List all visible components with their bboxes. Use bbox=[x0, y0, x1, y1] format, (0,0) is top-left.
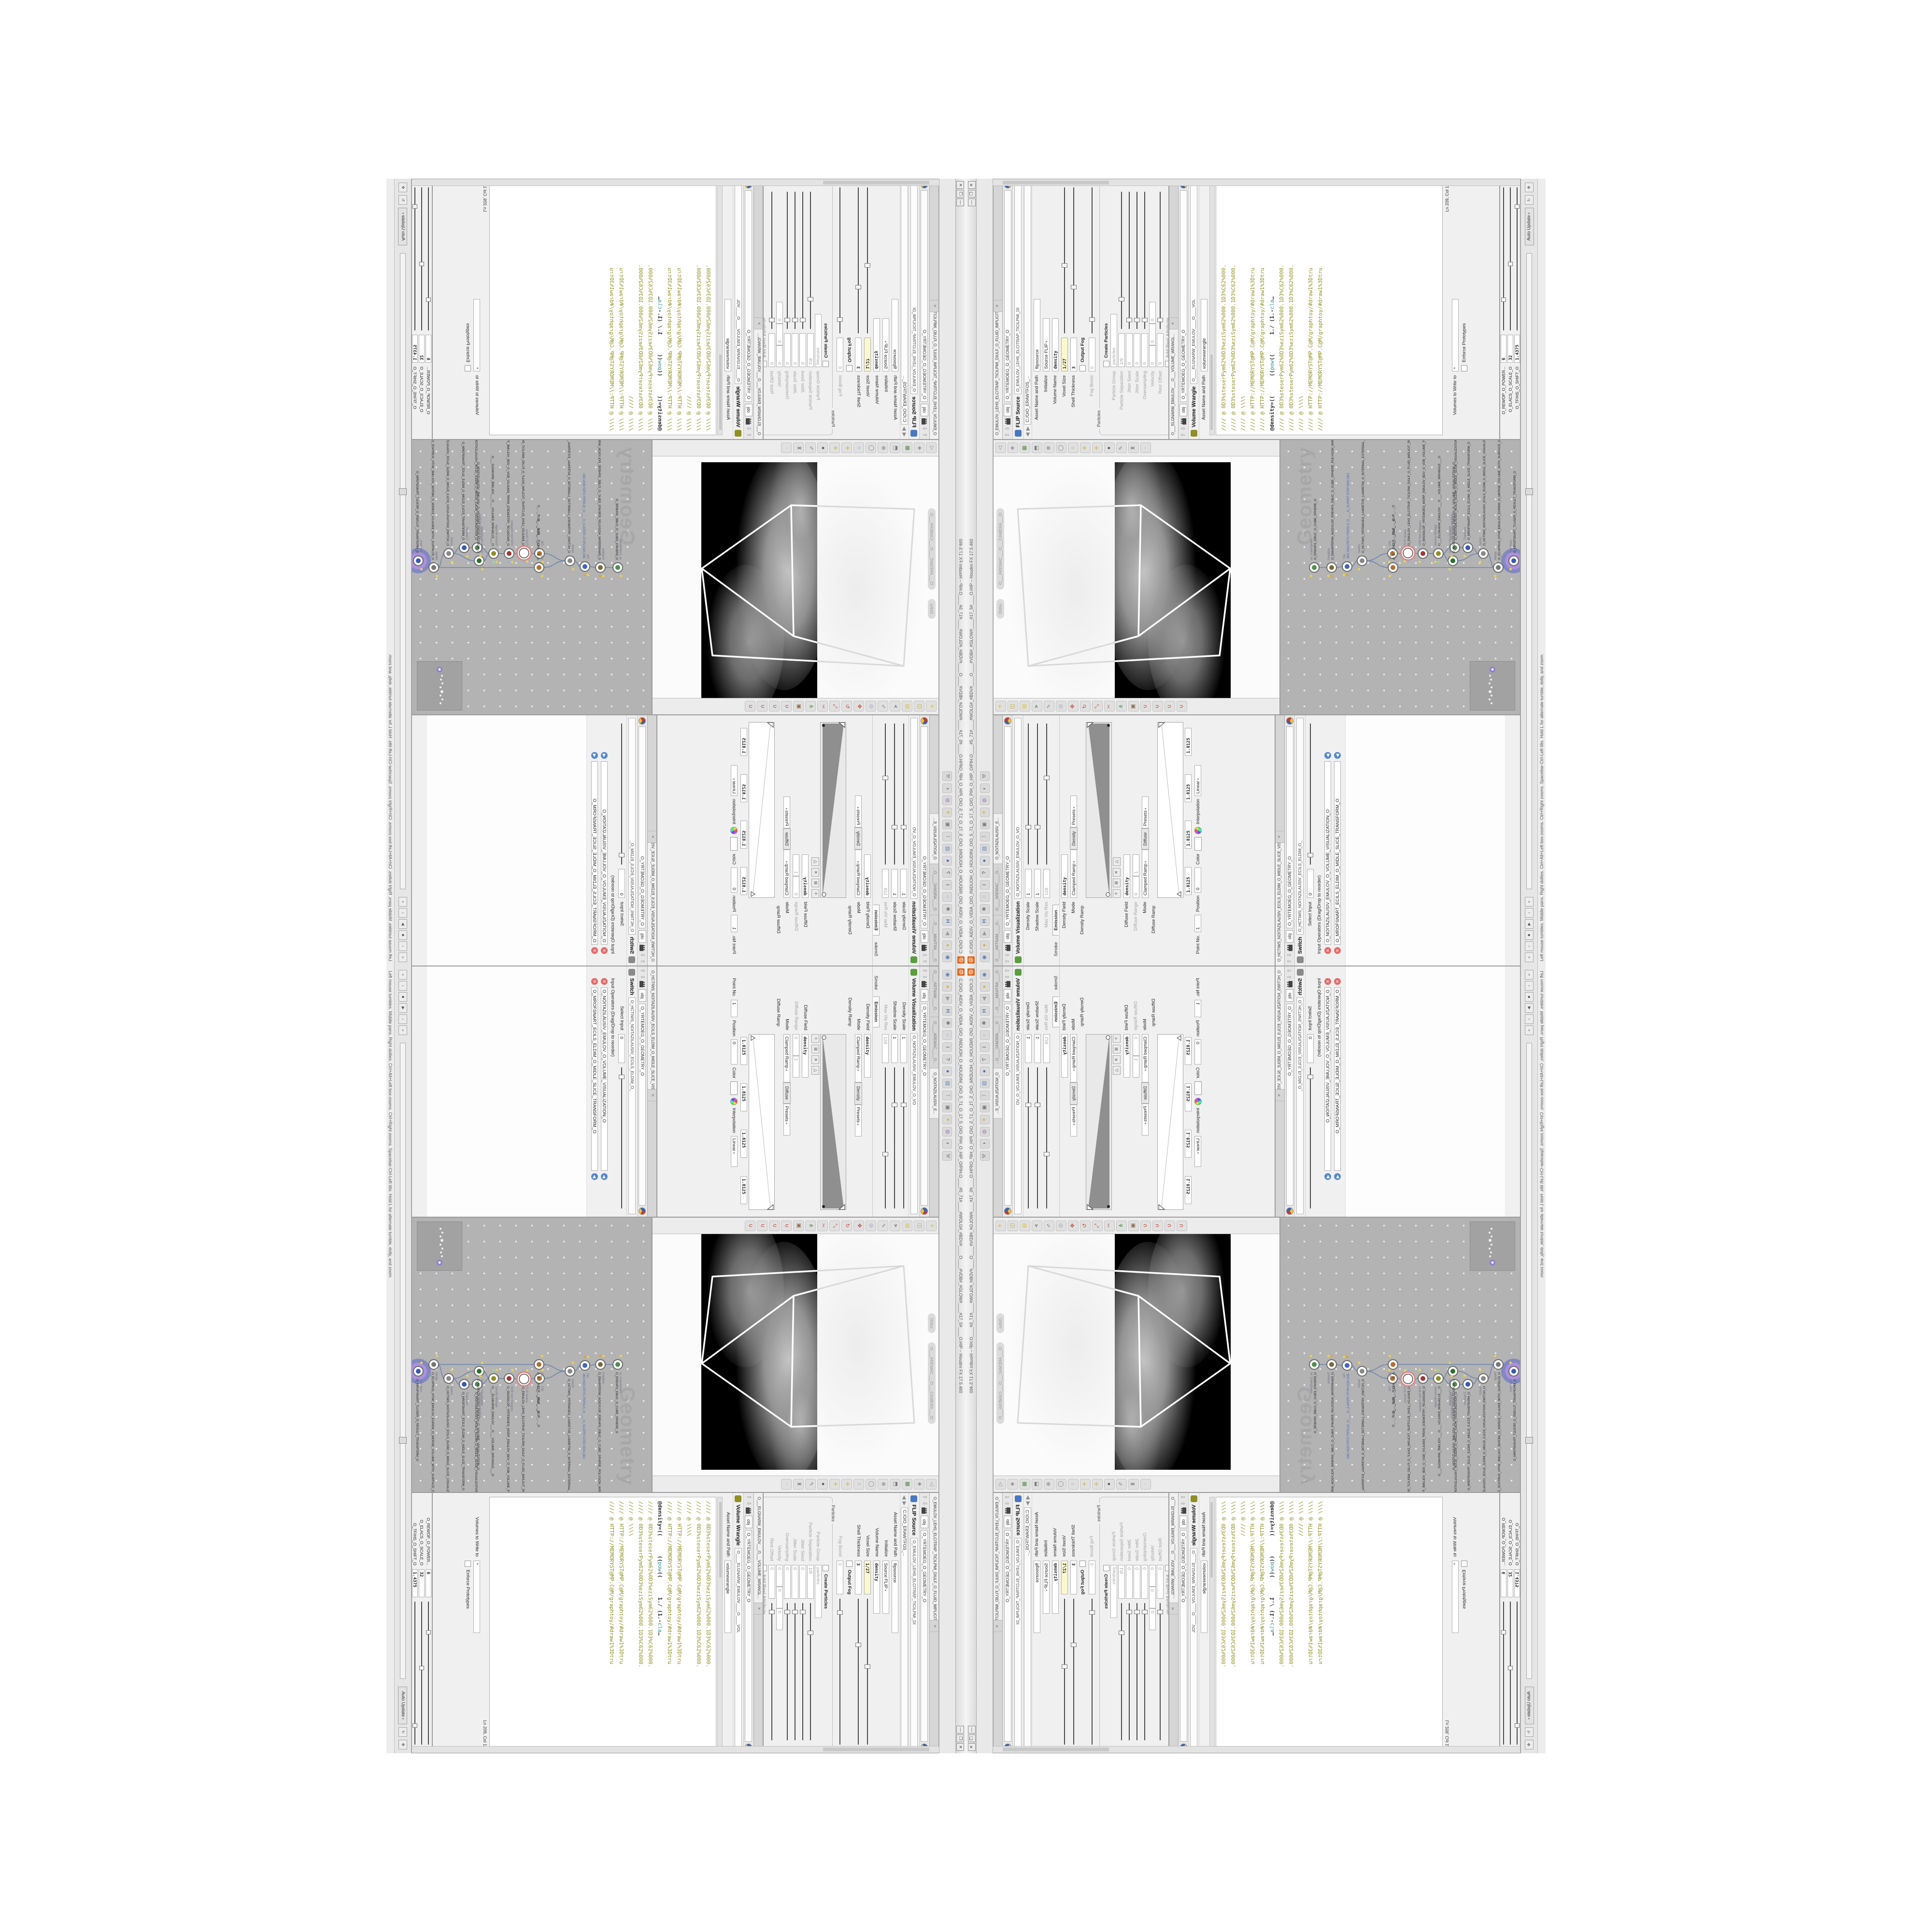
obj-tab[interactable]: obj bbox=[1286, 989, 1293, 1002]
jitter-scale-field[interactable]: 0 bbox=[1134, 333, 1140, 367]
pane-down-arrow-icon[interactable]: ⇩ bbox=[921, 426, 928, 431]
render-icon[interactable]: ◐ bbox=[943, 1139, 952, 1149]
ring-icon[interactable]: ◯ bbox=[1056, 1479, 1066, 1490]
image-plane-icon[interactable]: ▦ bbox=[902, 1479, 912, 1490]
rewind-icon[interactable]: « bbox=[1525, 970, 1534, 980]
max-vis-res-slider[interactable] bbox=[885, 724, 886, 865]
node-flag-icon[interactable] bbox=[602, 575, 605, 577]
node-flag-icon[interactable] bbox=[599, 575, 601, 577]
jitter-scale-field[interactable]: 0 bbox=[1134, 1565, 1140, 1599]
ramp-value-field[interactable]: 1.8125 bbox=[1185, 1176, 1192, 1204]
tab-o-hctiws-noitazilausiv-ecils-e[interactable]: O_HCTIWS_NOITAZILAUSIV_ECILS_ELDIM_O_MID… bbox=[648, 842, 656, 966]
point-no-field[interactable]: 1 bbox=[731, 1000, 738, 1017]
o-tfihs-o-shift-o-slider[interactable] bbox=[1517, 187, 1518, 330]
remove-operator-icon[interactable]: ✕ bbox=[1334, 947, 1341, 954]
image-plane-icon[interactable]: ▦ bbox=[1020, 443, 1030, 454]
oversampling-field[interactable]: 0 bbox=[1141, 1565, 1148, 1599]
gear-icon[interactable]: ✱ bbox=[943, 1018, 952, 1028]
node-transform[interactable] bbox=[459, 1379, 469, 1390]
voxel-size-field[interactable]: 1/27 bbox=[865, 1561, 871, 1594]
density-scale-slider[interactable] bbox=[1028, 724, 1029, 865]
help-icon[interactable]: ? bbox=[980, 868, 990, 878]
frame-box-icon[interactable]: ▣ bbox=[793, 1221, 804, 1231]
node-switch[interactable] bbox=[1357, 555, 1367, 566]
asset-name-and-path-field[interactable]: flipsource bbox=[1034, 1561, 1040, 1633]
shadow-scale-slider[interactable] bbox=[1037, 724, 1038, 865]
obj-tab[interactable]: obj bbox=[921, 930, 928, 943]
shell-thickness-field[interactable]: 3 bbox=[1070, 338, 1077, 371]
voxel-size-field[interactable]: 1/27 bbox=[865, 338, 871, 371]
shadow-scale-field[interactable]: 1 bbox=[1034, 1034, 1041, 1063]
move-gizmo-icon[interactable]: ✥ bbox=[1068, 1221, 1079, 1231]
obj-tab[interactable]: obj bbox=[745, 1516, 753, 1528]
tab-close-icon[interactable]: ✕ bbox=[1276, 831, 1284, 842]
ramp-grid-icon[interactable]: ⊞ bbox=[811, 879, 819, 887]
draw-curve-icon[interactable]: ∿ bbox=[1044, 701, 1054, 712]
mode-menu[interactable]: Presets bbox=[1070, 1105, 1077, 1136]
diffuse-range-field[interactable]: 0 bbox=[1133, 1034, 1139, 1056]
play-icon[interactable]: ▶ bbox=[1525, 1003, 1534, 1013]
node-polywire[interactable] bbox=[595, 1359, 606, 1370]
diamond-icon[interactable]: ◈ bbox=[1008, 1479, 1018, 1490]
network-path[interactable]: O_YRTEMOEG_O_GEOMETRY_O bbox=[1180, 1530, 1187, 1742]
max-vis-res-field[interactable]: 128 bbox=[1043, 1034, 1050, 1063]
operator-name-field[interactable]: O_MROFSNART_ECILS_ELDIM_O_MIDLE_SLICE_TR… bbox=[591, 987, 598, 1171]
pin-icon[interactable]: ⊺ bbox=[980, 1091, 990, 1100]
window-titlebar[interactable]: @ C:/O/O_AIDIV_O_VIDIA_O/O_INIDUOH_O_HOU… bbox=[966, 179, 977, 966]
refresh-icon[interactable]: ↻ bbox=[1525, 195, 1534, 205]
rgb-axis-icon[interactable]: ⋔ bbox=[805, 1221, 816, 1231]
pane-down-arrow-icon[interactable]: ⇩ bbox=[745, 1501, 752, 1506]
color-wheel-icon[interactable] bbox=[1194, 827, 1202, 834]
obj-tab[interactable]: obj bbox=[1004, 989, 1011, 1002]
yellow-ball-icon[interactable]: ● bbox=[943, 940, 952, 950]
ramp-value-field[interactable]: 1.8125 bbox=[740, 821, 747, 849]
pane-down-arrow-icon[interactable]: ⇩ bbox=[921, 1501, 928, 1506]
node-flag-icon[interactable] bbox=[511, 1369, 513, 1371]
magnet-b-icon[interactable]: ∪ bbox=[769, 701, 780, 712]
tab-o-noitazilausiv-e[interactable]: O_NOITAZILAUSIV_E... bbox=[994, 1068, 1002, 1119]
tab-o-noitazilausiv-e[interactable]: O_NOITAZILAUSIV_E... bbox=[994, 813, 1002, 864]
notes-icon[interactable]: ▤ bbox=[902, 701, 912, 712]
node-flag-icon[interactable] bbox=[1450, 555, 1453, 557]
play-icon[interactable]: ▶ bbox=[398, 1003, 407, 1013]
lock-icon[interactable]: ⬒ bbox=[890, 1479, 900, 1490]
tab-o-aremac-o[interactable]: O____AREMAC____O... bbox=[930, 864, 938, 915]
step-back-icon[interactable]: ‹ bbox=[1525, 981, 1534, 991]
magnet-d-icon[interactable]: ∪ bbox=[1177, 701, 1187, 712]
node-merge[interactable] bbox=[428, 562, 439, 573]
ortho-pill[interactable]: Ortho bbox=[928, 1313, 936, 1333]
node-flag-icon[interactable] bbox=[1404, 1369, 1406, 1372]
ramp-value-field[interactable]: 1.8125 bbox=[1185, 821, 1192, 849]
particle-group-field[interactable]: particles bbox=[1110, 1565, 1117, 1618]
color-wheel-icon[interactable] bbox=[1194, 1098, 1202, 1105]
volumes-field[interactable]: * bbox=[1452, 299, 1459, 371]
network-path[interactable]: O_YRTEMOEG_O_GEOMETRY_O bbox=[745, 1530, 753, 1742]
color-swatch[interactable] bbox=[731, 837, 738, 851]
node-path-field[interactable]: O_NOITAZILAUSIV_EMULOV_O_VO bbox=[910, 1033, 918, 1214]
particle-group-field[interactable]: particles bbox=[1110, 314, 1117, 367]
magnet-a-icon[interactable]: ∪ bbox=[781, 1221, 792, 1231]
node-path-field[interactable]: O_HCTIWS_NOITAZILAUSIV_ECILS_ELDIM_O_ bbox=[1296, 997, 1304, 1214]
wrench-icon[interactable]: ⚒ bbox=[943, 1151, 952, 1161]
operator-back-icon[interactable]: ◀ bbox=[601, 752, 608, 759]
particle-separation-slider[interactable] bbox=[810, 1603, 811, 1740]
maximize-button[interactable]: ❐ bbox=[956, 190, 964, 198]
node-flag-icon[interactable] bbox=[541, 575, 543, 577]
layout-icon[interactable]: ◫ bbox=[1008, 701, 1018, 712]
node-flag-icon[interactable] bbox=[1358, 568, 1360, 570]
node-vdb-from-polygons[interactable] bbox=[504, 1373, 514, 1384]
node-vdb-from-polygons[interactable] bbox=[504, 548, 514, 559]
mode-menu[interactable]: Presets bbox=[784, 1104, 791, 1136]
cd-icon[interactable]: ◎ bbox=[1056, 701, 1066, 712]
operator-name-field[interactable]: O_NOITAZILAUSIV_EMULOV_O_VOLUME_VISUALIZ… bbox=[601, 761, 608, 945]
nav-arrow-icon[interactable]: ➤ bbox=[890, 701, 900, 712]
node-flag-icon[interactable] bbox=[479, 1375, 482, 1377]
tab-close-icon[interactable]: ✕ bbox=[930, 1620, 938, 1632]
shell-thickness-slider[interactable] bbox=[858, 187, 859, 333]
ramp-value-field[interactable]: 1.8125 bbox=[740, 867, 747, 895]
max-vis-res-slider[interactable] bbox=[1046, 1067, 1047, 1208]
o-rewop-o-power-field[interactable]: 6 bbox=[426, 335, 431, 363]
node-as-cubesphere[interactable] bbox=[612, 562, 623, 573]
box-icon[interactable]: ▧ bbox=[943, 844, 952, 853]
help-icon[interactable]: ? bbox=[943, 1054, 952, 1064]
material-icon[interactable]: ◍ bbox=[980, 796, 990, 805]
camera-icon[interactable]: ▣ bbox=[980, 1103, 990, 1112]
network-minimap[interactable] bbox=[417, 661, 462, 710]
particle-group-field[interactable]: particles bbox=[815, 314, 822, 367]
density-scale-field[interactable]: 1 bbox=[1025, 869, 1032, 898]
node-clip[interactable] bbox=[1388, 1359, 1398, 1370]
step-forward-icon[interactable]: › bbox=[1525, 908, 1534, 918]
network-path[interactable]: O_YRTEMOEG_O_GEOMETRY_O bbox=[745, 190, 753, 402]
fast-forward-icon[interactable]: » bbox=[1525, 1025, 1534, 1035]
node-path-field[interactable]: O_NOITAZILAUSIV_EMULOV_O_VO bbox=[910, 718, 918, 899]
tab-close-icon[interactable]: ✕ bbox=[1276, 1090, 1284, 1101]
node-flag-icon[interactable] bbox=[1479, 1369, 1481, 1371]
interpolation-menu[interactable]: Linear bbox=[731, 1136, 738, 1167]
o-rewop-o-power-slider[interactable] bbox=[1503, 1602, 1504, 1745]
fog-boost-field[interactable]: 0 bbox=[837, 1561, 844, 1594]
camera-icon[interactable]: ▣ bbox=[980, 820, 990, 829]
node-flag-icon[interactable] bbox=[1479, 561, 1481, 563]
select-input-field[interactable]: 0 bbox=[1307, 1034, 1314, 1063]
shell-thickness-field[interactable]: 3 bbox=[855, 1561, 862, 1594]
density-button[interactable]: Density bbox=[855, 827, 863, 850]
node-flag-icon[interactable] bbox=[572, 1362, 574, 1364]
light-add-icon[interactable]: ✛ bbox=[841, 1479, 852, 1490]
node-volume-wrangle[interactable] bbox=[1433, 1373, 1444, 1384]
velocity-field[interactable]: 0 bbox=[1149, 324, 1156, 345]
jitter-scale-slider[interactable] bbox=[1136, 192, 1137, 329]
node-flag-icon[interactable] bbox=[523, 560, 525, 563]
material-icon[interactable]: ◍ bbox=[943, 1127, 952, 1136]
velocity-field[interactable]: 0 bbox=[776, 345, 783, 367]
max-vis-res-field[interactable]: 128 bbox=[1043, 869, 1050, 898]
node-flag-icon[interactable] bbox=[492, 1369, 495, 1371]
node-flag-icon[interactable] bbox=[451, 1369, 453, 1371]
ramp-flip-icon[interactable]: △ bbox=[811, 1066, 819, 1075]
h-logo-icon[interactable]: H bbox=[943, 916, 952, 926]
bulb-icon[interactable]: ⌂ bbox=[1068, 443, 1079, 454]
voxel-size-field[interactable]: 1/27 bbox=[1061, 1561, 1068, 1594]
rest-offset-field[interactable]: 0 bbox=[1157, 333, 1164, 367]
radial-sphere-icon[interactable]: ◉ bbox=[980, 970, 990, 980]
info-icon[interactable]: i bbox=[980, 1042, 990, 1052]
mode-menu[interactable]: Clamped Ramp bbox=[1070, 1034, 1077, 1082]
node-flag-icon[interactable] bbox=[541, 1355, 543, 1357]
asset-name-field[interactable]: volumewrangle bbox=[725, 1561, 732, 1633]
node-flag-icon[interactable] bbox=[1422, 561, 1424, 563]
window-titlebar[interactable]: @ C:/O/O_AIDIV_O_VIDIA_O/O_INIDUOH_O_HOU… bbox=[955, 179, 966, 966]
oversampling-slider[interactable] bbox=[1144, 1603, 1145, 1740]
magnet-c-icon[interactable]: ∪ bbox=[1165, 1221, 1175, 1231]
close-button[interactable]: ✕ bbox=[956, 181, 964, 189]
tab-o-elgnarw-emulov-o-volume-wran[interactable]: O___ELGNARW_EMULOV___O___VOLUME_WRANGL..… bbox=[754, 1493, 763, 1603]
jitter-scale-slider[interactable] bbox=[795, 1603, 796, 1740]
image-plane-icon[interactable]: ▦ bbox=[902, 443, 912, 454]
light-icon[interactable]: ☀ bbox=[980, 808, 990, 817]
node-path-field[interactable]: O_NOITAZILAUSIV_EMULOV_O_VO bbox=[1014, 1033, 1022, 1214]
mode-menu[interactable]: Presets bbox=[784, 796, 791, 828]
hand-icon[interactable]: ✥ bbox=[398, 183, 407, 192]
window-titlebar[interactable]: @ C:/O/O_AIDIV_O_VIDIA_O/O_INIDUOH_O_HOU… bbox=[955, 966, 966, 1753]
node-flag-icon[interactable] bbox=[587, 1356, 589, 1358]
play-tab-icon[interactable]: ▶ bbox=[943, 994, 952, 1004]
brush-icon[interactable]: ✎ bbox=[1116, 1479, 1127, 1490]
node-flag-icon[interactable] bbox=[466, 1375, 469, 1377]
tab-close-icon[interactable]: ✕ bbox=[648, 831, 656, 842]
pane-up-arrow-icon[interactable]: ⇧ bbox=[1004, 433, 1011, 437]
node-flag-icon[interactable] bbox=[1450, 1375, 1453, 1377]
frame-box-icon[interactable]: ▣ bbox=[793, 701, 804, 712]
pose-icon[interactable]: ♜ bbox=[1128, 1479, 1139, 1490]
render-icon[interactable]: ◐ bbox=[980, 1139, 990, 1149]
volume-name-field[interactable]: density bbox=[1052, 318, 1059, 371]
ramp-delete-icon[interactable]: ✕ bbox=[1113, 1055, 1121, 1064]
node-as-cubesphere[interactable] bbox=[1309, 1359, 1320, 1370]
node-flag-icon[interactable] bbox=[1310, 575, 1312, 577]
pose-icon[interactable]: ♜ bbox=[1128, 443, 1139, 454]
hand-icon[interactable]: ✥ bbox=[398, 1740, 407, 1749]
fog-boost-slider[interactable] bbox=[840, 1599, 841, 1745]
help-icon[interactable]: ? bbox=[943, 868, 952, 878]
velocity-field[interactable]: 0 bbox=[776, 324, 783, 345]
light-box-icon[interactable]: ✛ bbox=[1092, 1479, 1103, 1490]
particle-separation-field[interactable]: 1/9 bbox=[1118, 1565, 1125, 1599]
node-transform[interactable] bbox=[459, 542, 469, 553]
brush-icon[interactable]: ✎ bbox=[1116, 443, 1127, 454]
pane-up-arrow-icon[interactable]: ⇧ bbox=[921, 959, 928, 964]
pane-up-arrow-icon[interactable]: ⇧ bbox=[1004, 959, 1011, 964]
auto-update-button[interactable]: Auto Update bbox=[398, 1687, 408, 1724]
asset-name-field[interactable]: volumewrangle bbox=[1201, 299, 1207, 371]
viewport-pane[interactable]: ☀◫▤➤∿◎✥↻⤡✂⋔▣∪∪∪∪ ◁◈▦⬒⊗◯⌂✛✛●✎♜· O___AREMA… bbox=[652, 440, 939, 715]
diffuse-field-field[interactable]: density bbox=[1123, 1034, 1130, 1078]
o-rewop-o-power-slider[interactable] bbox=[1503, 187, 1504, 330]
diffuse-range-field[interactable]: 1 bbox=[793, 1056, 800, 1078]
volume-name-field[interactable]: density bbox=[874, 1561, 881, 1614]
network-path[interactable]: O_YRTEMOEG_O_GEOMETRY_O bbox=[1004, 726, 1011, 928]
lamp-icon[interactable]: ☀ bbox=[995, 1221, 1006, 1231]
node-flag-icon[interactable] bbox=[1407, 560, 1409, 563]
tab-o-emulov-lehs-elcitrap-ticilpm[interactable]: O_EMULOV_LEHS_ELCITRAP_TICILPMI_DIULF_O_… bbox=[994, 312, 1002, 439]
hand-icon[interactable]: ✥ bbox=[1525, 1740, 1534, 1749]
node-polywire[interactable] bbox=[1326, 562, 1337, 573]
node-switch[interactable] bbox=[565, 555, 575, 566]
blue-sphere-icon[interactable]: ● bbox=[980, 856, 990, 866]
ramp-add-icon[interactable]: ＋ bbox=[1113, 889, 1121, 898]
ring-icon[interactable]: ◯ bbox=[866, 1479, 876, 1490]
node-flag-icon[interactable] bbox=[1331, 575, 1333, 577]
node-switch[interactable] bbox=[1357, 1366, 1367, 1377]
back-arrow-icon[interactable]: ◁ bbox=[926, 443, 937, 454]
mode-menu[interactable]: Clamped Ramp bbox=[855, 850, 862, 898]
pane-down-arrow-icon[interactable]: ⇩ bbox=[1004, 426, 1011, 431]
tab-o-elgnarw-emulov-o-volume-wran[interactable]: O___ELGNARW_EMULOV___O___VOLUME_WRANGL..… bbox=[1169, 329, 1178, 439]
node-flag-icon[interactable] bbox=[1343, 574, 1345, 576]
velocity-field[interactable]: 0 bbox=[1149, 1565, 1156, 1587]
node-switch[interactable] bbox=[1478, 1373, 1489, 1384]
node-vdb-from-polygons[interactable] bbox=[1418, 1373, 1428, 1384]
diffuse-button[interactable]: Diffuse bbox=[783, 828, 791, 850]
position-field[interactable]: 0 bbox=[1194, 1039, 1201, 1065]
tab-o-noitazilausiv-e[interactable]: O_NOITAZILAUSIV_E... bbox=[930, 813, 938, 864]
o-elacs-o-scale-o-field[interactable]: 32 bbox=[419, 335, 425, 363]
viewport-pane[interactable]: ☀◫▤➤∿◎✥↻⤡✂⋔▣∪∪∪∪ ◁◈▦⬒⊗◯⌂✛✛●✎♜· O___AREMA… bbox=[993, 440, 1280, 715]
o-elacs-o-scale-o-field[interactable]: 32 bbox=[419, 1569, 425, 1597]
tab-o-artnam-o[interactable]: O____ARTNAM____O... bbox=[930, 915, 938, 966]
lamp-icon[interactable]: ☀ bbox=[926, 701, 937, 712]
mode-menu[interactable]: Clamped Ramp bbox=[1142, 850, 1149, 898]
tab-close-icon[interactable]: ✕ bbox=[754, 317, 763, 329]
ramp-flip-icon[interactable]: △ bbox=[811, 857, 819, 866]
light-box-icon[interactable]: ✛ bbox=[829, 1479, 840, 1490]
shade-sphere-icon[interactable]: ● bbox=[1104, 1479, 1115, 1490]
o-elacs-o-scale-o-slider[interactable] bbox=[421, 1602, 422, 1745]
pane-down-arrow-icon[interactable]: ⇩ bbox=[921, 953, 928, 957]
particle-separation-field[interactable]: 1/9 bbox=[807, 1565, 814, 1599]
diamond-icon[interactable]: ◈ bbox=[1008, 443, 1018, 454]
box-icon[interactable]: ▧ bbox=[943, 1079, 952, 1088]
box-icon[interactable]: ▧ bbox=[980, 1079, 990, 1088]
obj-tab[interactable]: obj bbox=[745, 404, 753, 416]
mode-menu[interactable]: Presets bbox=[855, 796, 862, 827]
node-transform[interactable] bbox=[1463, 1379, 1473, 1390]
tab-emission[interactable]: Emission bbox=[1052, 905, 1059, 936]
node-path-field[interactable]: O_HCTIWS_NOITAZILAUSIV_ECILS_ELDIM_O_ bbox=[1296, 718, 1304, 935]
pane-up-arrow-icon[interactable]: ⇧ bbox=[639, 959, 646, 964]
density-scale-field[interactable]: 1 bbox=[901, 869, 908, 898]
tab-o-noitazilausiv-e[interactable]: O_NOITAZILAUSIV_E... bbox=[930, 1068, 938, 1119]
enforce-prototypes-checkbox[interactable] bbox=[1461, 365, 1467, 371]
network-editor-pane[interactable]: Geometry as_CubeSphereO_EREHPS_EBUC_O_CU… bbox=[1280, 1217, 1520, 1492]
render-icon[interactable]: ◐ bbox=[943, 783, 952, 793]
node-transform[interactable] bbox=[413, 1366, 424, 1377]
material-icon[interactable]: ◍ bbox=[943, 796, 952, 805]
pane-up-arrow-icon[interactable]: ⇧ bbox=[1286, 959, 1293, 964]
tab-close-icon[interactable]: ✕ bbox=[994, 300, 1002, 312]
obj-tab[interactable]: obj bbox=[921, 989, 928, 1002]
add-rest-attribute-checkbox[interactable] bbox=[1165, 1565, 1169, 1571]
layout-icon[interactable]: ◫ bbox=[914, 701, 924, 712]
obj-tab[interactable]: obj bbox=[921, 1516, 928, 1528]
diffuse-range-field[interactable]: 0 bbox=[793, 876, 800, 898]
move-gizmo-icon[interactable]: ✥ bbox=[1068, 701, 1079, 712]
node-transform[interactable] bbox=[1508, 555, 1519, 566]
enforce-prototypes-checkbox[interactable] bbox=[1461, 1561, 1467, 1567]
frame-box-icon[interactable]: ▣ bbox=[1128, 1221, 1139, 1231]
node-flag-icon[interactable] bbox=[1389, 1355, 1391, 1357]
initialize-menu[interactable]: Source FLIP bbox=[883, 318, 890, 371]
stop-icon[interactable]: ■ bbox=[1525, 992, 1534, 1002]
voxel-size-slider[interactable] bbox=[1064, 187, 1065, 333]
magnet-b-icon[interactable]: ∪ bbox=[769, 1221, 780, 1231]
obj-tab[interactable]: obj bbox=[1004, 930, 1011, 943]
mode-menu[interactable]: Clamped Ramp bbox=[784, 1034, 791, 1082]
editor-scrollbar[interactable] bbox=[1209, 183, 1215, 435]
diffuse-range-field[interactable]: 1 bbox=[793, 854, 800, 876]
window-titlebar[interactable]: @ C:/O/O_AIDIV_O_VIDIA_O/O_INIDUOH_O_HOU… bbox=[966, 966, 977, 1753]
node-flag-icon[interactable] bbox=[1389, 575, 1391, 577]
node-flip-source[interactable] bbox=[1403, 1374, 1413, 1384]
density-button[interactable]: Density bbox=[855, 1082, 863, 1105]
network-editor-pane[interactable]: Geometry as_CubeSphereO_EREHPS_EBUC_O_CU… bbox=[412, 1217, 652, 1492]
nav-arrow-icon[interactable]: ➤ bbox=[890, 1221, 900, 1231]
tab-o-hctiws-noitazilausiv-ecils-e[interactable]: O_HCTIWS_NOITAZILAUSIV_ECILS_ELDIM_O_MID… bbox=[648, 966, 656, 1090]
node-flag-icon[interactable] bbox=[481, 1362, 483, 1364]
file-path-field[interactable]: C:/O/O_ERAWTFOS_... bbox=[1024, 182, 1031, 425]
node-flag-icon[interactable] bbox=[572, 568, 574, 570]
jitter-scale-field[interactable]: 0 bbox=[792, 1565, 798, 1599]
remove-operator-icon[interactable]: ✕ bbox=[591, 978, 598, 985]
position-field[interactable]: 0 bbox=[731, 867, 738, 893]
node-merge[interactable] bbox=[1493, 1359, 1504, 1370]
asset-name-field[interactable]: volumewrangle bbox=[1201, 1561, 1207, 1633]
node-path-field[interactable]: O____ELGNARW_EMULOV____O____VOL bbox=[1190, 1548, 1197, 1750]
density-button[interactable]: Density bbox=[1070, 1082, 1078, 1105]
timeline-slider[interactable] bbox=[1526, 1043, 1532, 1679]
node-path-field[interactable]: O_HCTIWS_NOITAZILAUSIV_ECILS_ELDIM_O_ bbox=[628, 997, 636, 1214]
lock-icon[interactable]: ⬒ bbox=[890, 443, 900, 454]
mode-menu[interactable]: Presets bbox=[855, 1105, 862, 1136]
interpolation-menu[interactable]: Linear bbox=[1194, 765, 1201, 796]
network-path[interactable]: O_YRTEMOEG_O_GEOMETRY_O bbox=[921, 1530, 928, 1742]
node-path-field[interactable]: O____ELGNARW_EMULOV____O____VOL bbox=[735, 182, 742, 384]
draw-curve-icon[interactable]: ∿ bbox=[1044, 1221, 1054, 1231]
remove-operator-icon[interactable]: ✕ bbox=[601, 978, 608, 985]
radial-sphere-icon[interactable]: ◉ bbox=[943, 952, 952, 962]
ring-icon[interactable]: ◯ bbox=[866, 443, 876, 454]
ramp-delete-icon[interactable]: ✕ bbox=[811, 868, 819, 877]
network-path[interactable]: O_YRTEMOEG_O_GEOMETRY_O bbox=[1004, 1004, 1011, 1206]
maximize-button[interactable]: ❐ bbox=[968, 1734, 976, 1742]
move-gizmo-icon[interactable]: ✥ bbox=[853, 1221, 864, 1231]
remove-operator-icon[interactable]: ✕ bbox=[1324, 978, 1331, 985]
output-fog-checkbox[interactable] bbox=[1080, 365, 1086, 371]
ramp-value-field[interactable]: 1.8125 bbox=[740, 1130, 747, 1158]
diffuse-button[interactable]: Diffuse bbox=[1141, 828, 1149, 850]
node-flag-icon[interactable] bbox=[1449, 568, 1451, 570]
ramp-grid-icon[interactable]: ⊞ bbox=[811, 1045, 819, 1053]
o-tfihs-o-shift-o-field[interactable]: 1.4375 bbox=[412, 335, 418, 363]
tab-o-aremac-o[interactable]: O____AREMAC____O... bbox=[930, 1017, 938, 1068]
node-flag-icon[interactable] bbox=[1422, 1369, 1424, 1371]
network-minimap[interactable] bbox=[417, 1222, 462, 1271]
